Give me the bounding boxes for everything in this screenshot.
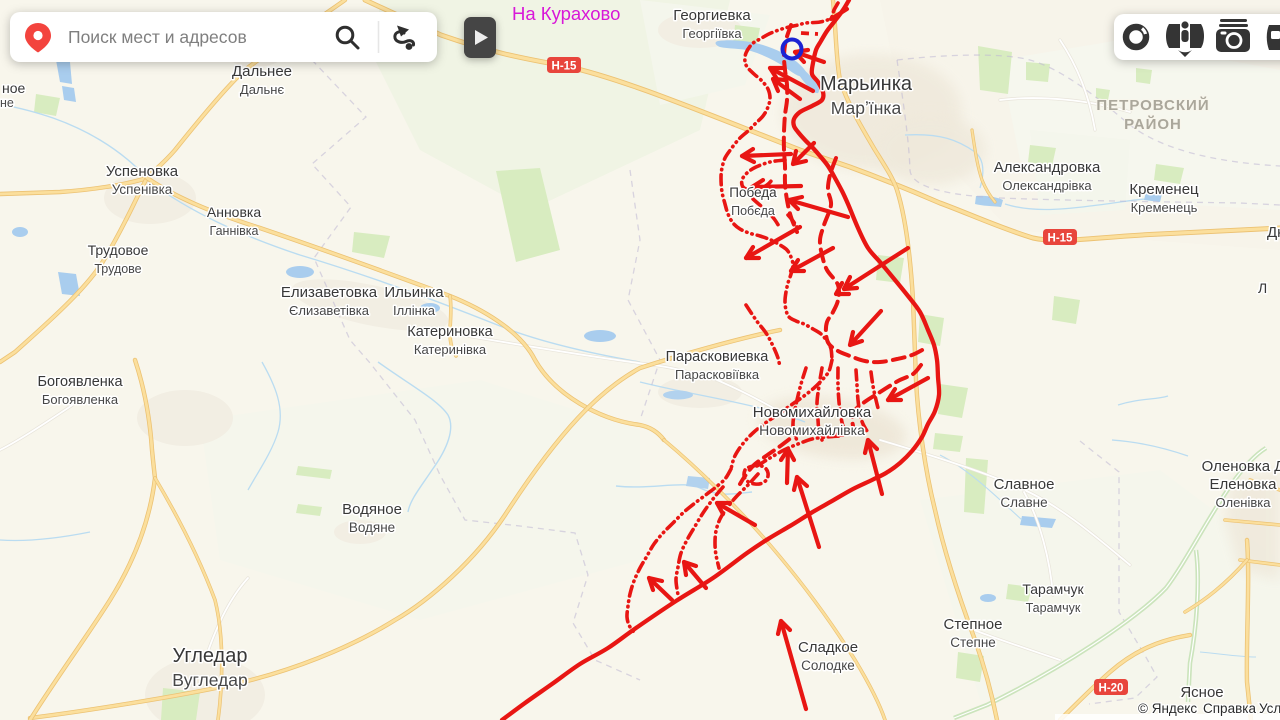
svg-text:Дальнее: Дальнее (232, 63, 292, 80)
svg-text:Водяное: Водяное (342, 501, 402, 518)
svg-text:Анновка: Анновка (207, 204, 261, 220)
svg-text:РАЙОН: РАЙОН (1124, 115, 1182, 133)
svg-text:Степне: Степне (950, 635, 996, 650)
svg-text:ПЕТРОВСКИЙ: ПЕТРОВСКИЙ (1096, 96, 1209, 114)
svg-text:Славне: Славне (1000, 495, 1047, 510)
svg-text:Ильинка: Ильинка (384, 284, 444, 301)
svg-text:Трудове: Трудове (94, 262, 141, 276)
svg-text:Єлизаветівка: Єлизаветівка (289, 303, 370, 318)
svg-text:Сладкое: Сладкое (798, 639, 858, 656)
svg-text:Тарамчук: Тарамчук (1026, 601, 1081, 615)
svg-text:Н-20: Н-20 (1099, 683, 1124, 695)
svg-text:Кременец: Кременец (1129, 181, 1199, 198)
svg-text:ное: ное (2, 80, 26, 96)
svg-text:Александровка: Александровка (994, 159, 1101, 176)
svg-text:Трудовое: Трудовое (88, 242, 149, 258)
svg-text:Катериновка: Катериновка (407, 324, 493, 340)
svg-text:Водяне: Водяне (349, 520, 395, 535)
svg-text:Славное: Славное (994, 476, 1055, 493)
svg-text:Угледар: Угледар (173, 645, 248, 667)
svg-text:Оленовка Д: Оленовка Д (1202, 458, 1280, 475)
svg-text:Богоявленка: Богоявленка (37, 374, 123, 390)
svg-text:Георгіївка: Георгіївка (682, 26, 742, 41)
svg-text:Марьинка: Марьинка (820, 73, 913, 95)
svg-text:Ганнівка: Ганнівка (210, 224, 259, 238)
svg-text:Парасковиевка: Парасковиевка (666, 349, 770, 365)
svg-text:Олександрівка: Олександрівка (1002, 178, 1092, 193)
svg-text:Парасковіївка: Парасковіївка (675, 367, 760, 382)
svg-text:Успеновка: Успеновка (106, 163, 179, 180)
svg-text:Поиск мест и адресов: Поиск мест и адресов (68, 27, 247, 47)
svg-text:Оленівка: Оленівка (1216, 495, 1272, 510)
svg-text:Марʼїнка: Марʼїнка (831, 98, 902, 118)
svg-text:Степное: Степное (944, 616, 1003, 633)
svg-text:Тарамчук: Тарамчук (1022, 581, 1084, 597)
svg-text:Георгиевка: Георгиевка (673, 7, 751, 24)
svg-text:Новомихайлівка: Новомихайлівка (759, 422, 865, 438)
svg-text:Катеринівка: Катеринівка (414, 342, 487, 357)
svg-text:Вугледар: Вугледар (172, 670, 247, 690)
svg-text:Кременець: Кременець (1131, 200, 1198, 215)
svg-text:© Яндекс: © Яндекс (1138, 701, 1197, 716)
svg-text:Еленовка: Еленовка (1210, 476, 1278, 493)
svg-text:Богоявленка: Богоявленка (42, 392, 119, 407)
svg-text:Дн: Дн (1267, 224, 1280, 241)
svg-text:Победа: Победа (729, 185, 777, 200)
svg-text:Елизаветовка: Елизаветовка (281, 284, 378, 301)
svg-text:Ясное: Ясное (1180, 684, 1223, 701)
svg-text:Дальнє: Дальнє (240, 82, 285, 97)
svg-text:На Курахово: На Курахово (512, 3, 620, 24)
svg-text:Побєда: Побєда (731, 204, 775, 218)
svg-text:Н-15: Н-15 (552, 61, 578, 73)
svg-text:Новомихайловка: Новомихайловка (753, 404, 872, 421)
svg-text:Л: Л (1258, 280, 1267, 296)
svg-text:Іллінка: Іллінка (393, 303, 436, 318)
svg-text:Справка: Справка (1203, 701, 1256, 716)
svg-text:Солодке: Солодке (801, 658, 855, 673)
svg-text:не: не (0, 96, 14, 110)
svg-text:Усл: Усл (1259, 701, 1280, 716)
svg-text:Успенівка: Успенівка (112, 182, 173, 197)
svg-text:Н-15: Н-15 (1048, 233, 1074, 245)
